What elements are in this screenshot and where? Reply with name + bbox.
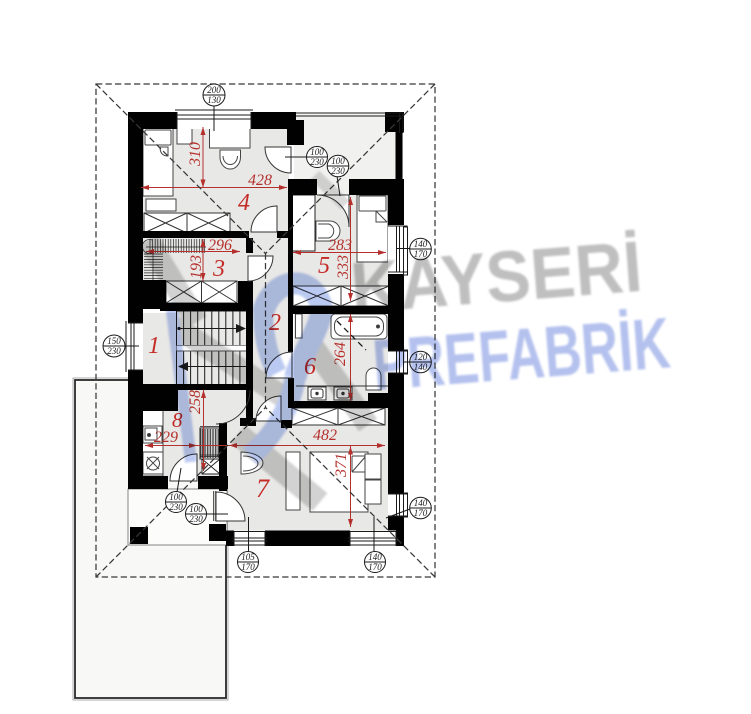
svg-text:371: 371	[333, 453, 350, 478]
svg-text:230: 230	[107, 346, 121, 356]
svg-text:100: 100	[189, 504, 203, 514]
svg-text:1: 1	[148, 333, 160, 359]
svg-text:150: 150	[107, 336, 121, 346]
svg-text:7: 7	[256, 474, 270, 503]
svg-text:310: 310	[187, 142, 204, 167]
svg-text:428: 428	[248, 172, 272, 189]
svg-text:170: 170	[414, 508, 428, 518]
svg-text:230: 230	[331, 166, 345, 176]
svg-text:140: 140	[368, 552, 382, 562]
svg-text:296: 296	[208, 237, 232, 254]
svg-text:193: 193	[188, 255, 205, 279]
svg-text:230: 230	[310, 157, 324, 167]
svg-text:3: 3	[212, 256, 225, 282]
svg-text:105: 105	[241, 552, 255, 562]
svg-text:130: 130	[207, 95, 221, 105]
svg-text:230: 230	[189, 514, 203, 524]
svg-text:100: 100	[331, 156, 345, 166]
svg-text:482: 482	[313, 427, 337, 444]
svg-text:140: 140	[414, 498, 428, 508]
svg-text:170: 170	[368, 562, 382, 572]
svg-text:5: 5	[318, 253, 330, 279]
svg-text:100: 100	[169, 492, 183, 502]
svg-text:230: 230	[169, 502, 183, 512]
svg-text:100: 100	[310, 147, 324, 157]
svg-text:4: 4	[238, 190, 250, 216]
svg-text:200: 200	[207, 85, 221, 95]
svg-text:170: 170	[241, 562, 255, 572]
